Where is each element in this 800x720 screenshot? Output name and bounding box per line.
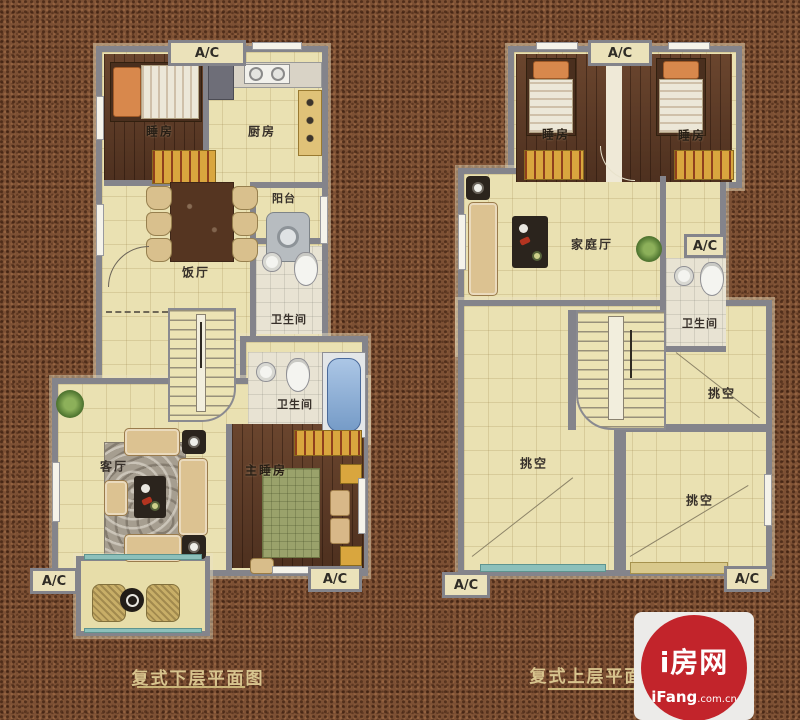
window (320, 196, 328, 244)
ac-box: A/C (684, 234, 726, 258)
caption-underline (548, 688, 642, 690)
window (764, 474, 772, 526)
ifang-logo-circle: i房网 iFang.com.cn (641, 615, 747, 720)
void-lower-right-label: 挑空 (686, 492, 714, 509)
speaker (182, 430, 206, 454)
kitchen-label: 厨房 (248, 123, 276, 140)
dining-chair (232, 212, 258, 236)
dining-chair (146, 238, 172, 262)
ifang-logo: i房网 iFang.com.cn (634, 612, 754, 720)
wardrobe (294, 430, 362, 456)
sofa (124, 428, 180, 456)
balcony-table (120, 588, 144, 612)
dining-chair (232, 186, 258, 210)
bed-duvet (659, 79, 703, 133)
wardrobe (674, 150, 734, 180)
window (52, 462, 60, 522)
window (480, 564, 606, 572)
bed (526, 58, 576, 136)
balcony-label: 阳台 (272, 190, 296, 206)
coffee-table (134, 476, 166, 518)
balcony-window (84, 628, 202, 633)
ifang-domain-bold: iFang (651, 688, 697, 706)
bathroom-lower-label: 卫生间 (277, 396, 313, 412)
dining-chair (146, 212, 172, 236)
lower-sill-strip (630, 562, 728, 574)
bathroom-label: 卫生间 (682, 315, 718, 331)
window (96, 96, 104, 140)
window (96, 204, 104, 256)
bedroom-right-label: 睡房 (678, 127, 706, 144)
bathtub (322, 352, 366, 438)
toilet (294, 252, 318, 286)
bedroom-left-label: 睡房 (542, 126, 570, 143)
wall (250, 182, 324, 188)
toilet (700, 262, 724, 296)
kitchen-sink (244, 64, 290, 84)
potted-plant (636, 236, 662, 262)
washer-drum (277, 226, 299, 248)
dining-label: 饭厅 (182, 264, 210, 281)
bed (110, 62, 202, 122)
dining-chair (232, 238, 258, 262)
living-label: 客厅 (100, 458, 128, 475)
staircase-arrow (630, 330, 632, 378)
nightstand (340, 546, 362, 566)
table-bowl (532, 251, 542, 261)
fridge (208, 62, 234, 100)
sofa (468, 202, 498, 296)
speaker-cone (472, 182, 484, 194)
wardrobe (524, 150, 584, 180)
floor-cushion (250, 558, 274, 574)
bathroom-sink (262, 252, 282, 272)
bathroom-upper-label: 卫生间 (271, 311, 307, 327)
table-item (519, 236, 531, 246)
ifang-logo-domain: iFang.com.cn (641, 687, 747, 706)
table-plate (141, 484, 150, 493)
ac-box: A/C (308, 566, 362, 592)
speaker (466, 176, 490, 200)
bed-pillow (533, 61, 569, 79)
ac-box: A/C (442, 572, 490, 598)
balcony-window (84, 554, 202, 560)
table-plate (519, 224, 528, 233)
potted-plant (56, 390, 84, 418)
bed-pillow (330, 490, 350, 516)
bathroom-sink (674, 266, 694, 286)
bedroom-label: 睡房 (146, 123, 174, 140)
bedside-rug (262, 468, 320, 558)
master-bedroom-label: 主睡房 (245, 462, 287, 479)
ac-box: A/C (30, 568, 78, 594)
staircase-core (608, 316, 624, 420)
window (358, 478, 366, 534)
coffee-table (512, 216, 548, 268)
speaker-cone (188, 541, 200, 553)
sofa (178, 458, 208, 536)
caption-underline (137, 686, 245, 688)
bed-pillow (663, 61, 699, 79)
speaker-cone (188, 436, 200, 448)
window (252, 42, 302, 50)
window (668, 42, 710, 50)
bed-pillow (113, 67, 141, 117)
bed (656, 58, 706, 136)
table-ring (126, 594, 139, 607)
bed-duvet (141, 65, 199, 119)
floorplan-image: 睡房 厨房 阳台 饭厅 卫生间 (0, 0, 800, 720)
window (536, 42, 578, 50)
toilet (286, 358, 310, 392)
wall (614, 430, 626, 572)
table-bowl (150, 501, 160, 511)
wall (666, 346, 726, 352)
void-upper-right-label: 挑空 (708, 385, 736, 402)
ac-box: A/C (588, 40, 652, 66)
stove (298, 90, 322, 156)
sink-basin (249, 67, 263, 81)
staircase-arrow (200, 322, 202, 368)
void-left-label: 挑空 (520, 455, 548, 472)
bed-pillow (330, 518, 350, 544)
bathroom-sink (256, 362, 276, 382)
dining-chair (146, 186, 172, 210)
wicker-chair (146, 584, 180, 622)
bathtub-basin (327, 358, 361, 432)
ifang-domain-suffix: .com.cn (697, 694, 737, 705)
ifang-logo-name: i房网 (641, 641, 747, 681)
sink-basin (271, 67, 285, 81)
wall (226, 424, 232, 570)
ac-box: A/C (724, 566, 770, 592)
ac-box: A/C (168, 40, 246, 66)
window (458, 214, 466, 270)
open-edge-dashed-line (106, 311, 168, 313)
wall (568, 310, 576, 430)
family-room-label: 家庭厅 (571, 236, 613, 253)
dining-table (170, 182, 234, 262)
wardrobe (152, 150, 216, 184)
armchair (104, 480, 128, 516)
